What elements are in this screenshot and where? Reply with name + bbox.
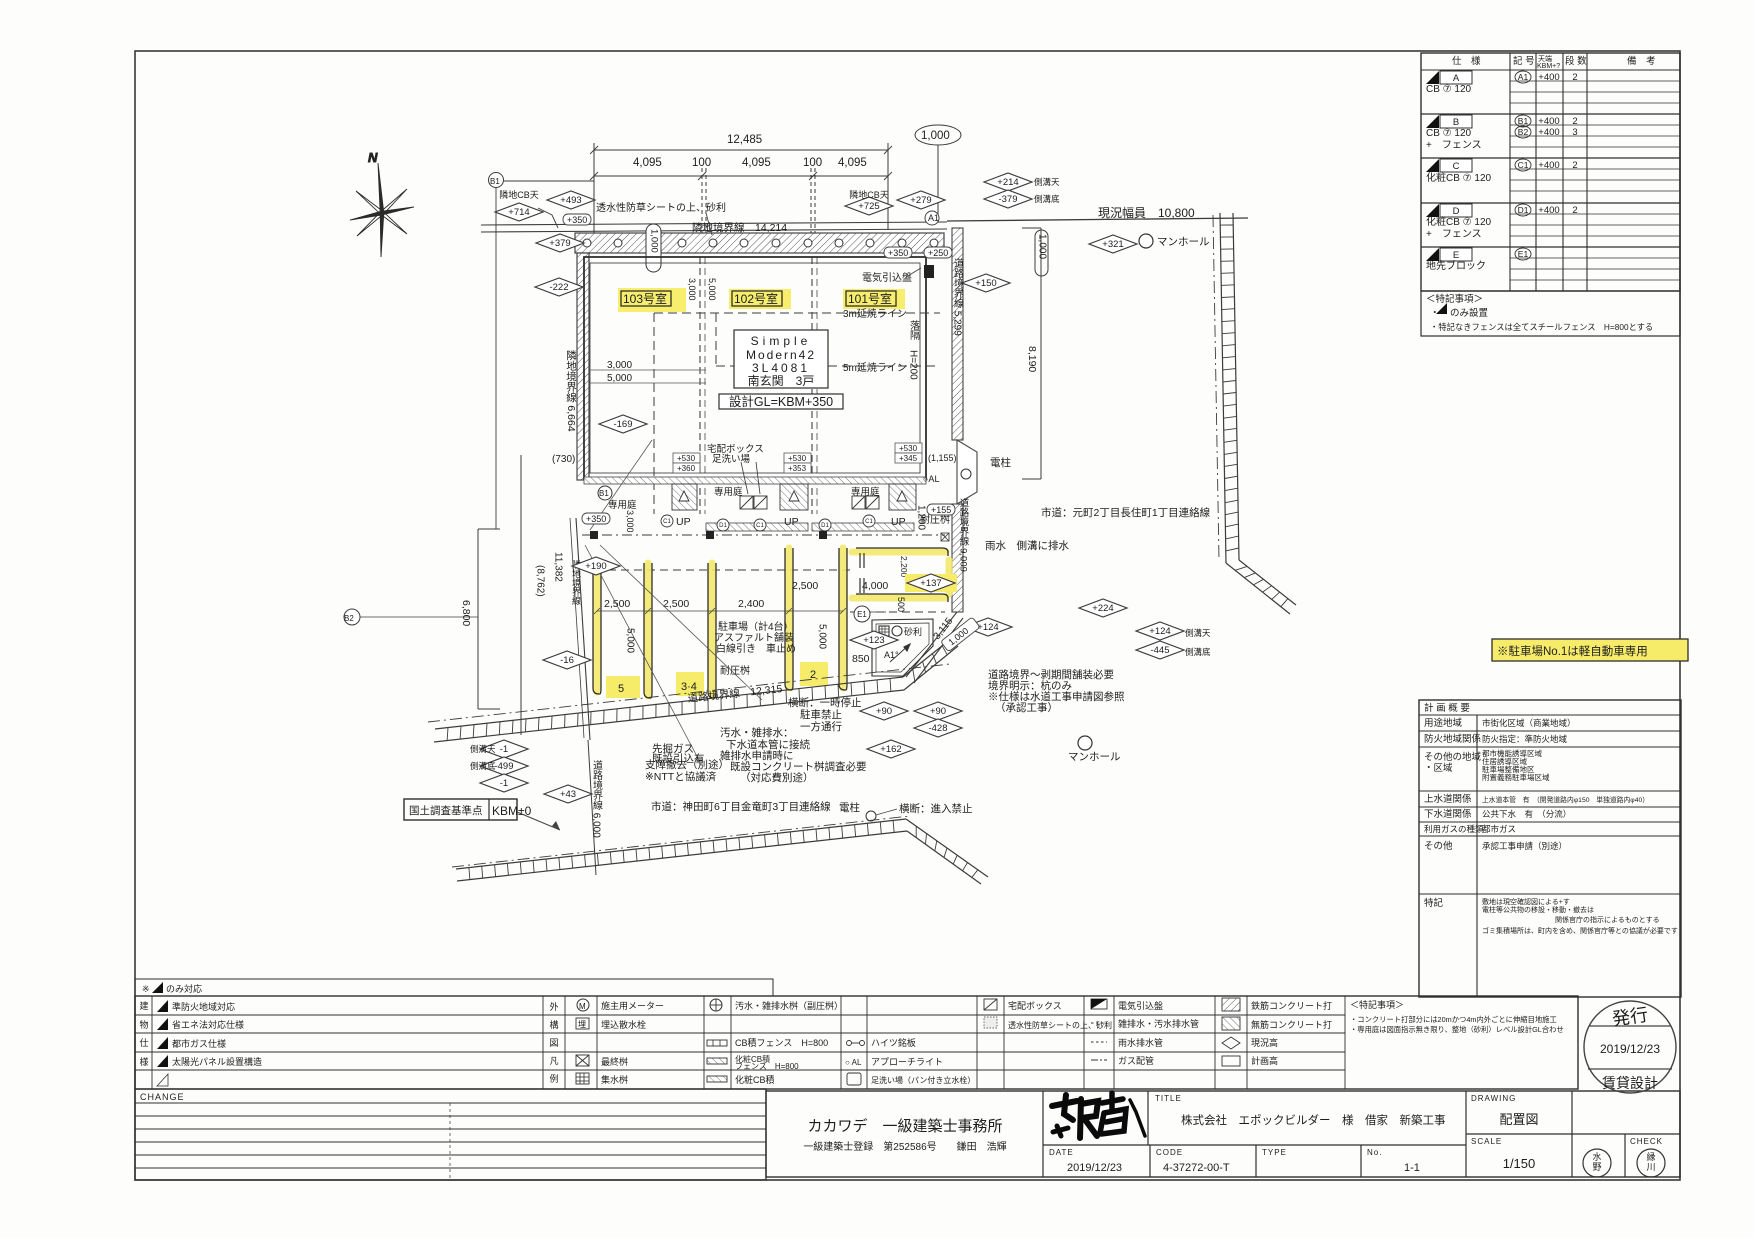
svg-text:3,000: 3,000 [687,278,697,301]
svg-text:下水道関係: 下水道関係 [1424,808,1472,820]
svg-text:落隔 H=200: 落隔 H=200 [908,320,920,380]
svg-text:電気引込盤: 電気引込盤 [862,271,912,284]
svg-text:宅配ボックス: 宅配ボックス [1008,1000,1062,1011]
svg-text:-445: -445 [1150,645,1169,656]
svg-text:仕 様: 仕 様 [1452,55,1481,67]
svg-text:※NTTと協議済: ※NTTと協議済 [645,770,717,783]
svg-text:透水性防草シートの上、砂利: 透水性防草シートの上、砂利 [596,201,726,214]
svg-text:-222: -222 [549,282,568,293]
svg-text:2: 2 [1572,205,1577,216]
svg-text:太陽光パネル設置構造: 太陽光パネル設置構造 [172,1056,262,1067]
svg-text:構: 構 [549,1019,558,1030]
svg-text:850: 850 [852,653,870,665]
svg-text:専用庭: 専用庭 [714,486,743,498]
svg-text:側溝底: 側溝底 [470,761,496,771]
svg-text:E: E [1453,250,1459,261]
svg-text:+214: +214 [997,177,1018,188]
svg-text:4,095: 4,095 [633,157,662,169]
svg-text:5,000: 5,000 [817,624,828,649]
svg-text:雑排水・汚水排水管: 雑排水・汚水排水管 [1118,1018,1199,1029]
svg-text:敷地は現空確認図による+す: 敷地は現空確認図による+す [1482,897,1570,906]
svg-text:C: C [1453,161,1460,172]
svg-text:施主用メーター: 施主用メーター [601,1000,664,1011]
svg-text:5,000: 5,000 [707,278,717,301]
svg-text:+ フェンス: + フェンス [1426,140,1482,151]
svg-text:アプローチライト: アプローチライト [871,1057,943,1067]
svg-text:TYPE: TYPE [1262,1148,1287,1157]
svg-text:株式会社 エポックビルダー 様 借家 新築工事: 株式会社 エポックビルダー 様 借家 新築工事 [1181,1113,1446,1127]
svg-text:ガス配管: ガス配管 [1118,1055,1154,1066]
svg-text:+530: +530 [677,454,696,463]
svg-text:+224: +224 [1092,603,1113,614]
svg-text:-1: -1 [500,778,508,789]
svg-text:備 考: 備 考 [1627,55,1656,67]
svg-text:100: 100 [803,157,822,169]
svg-text:側溝底: 側溝底 [1185,647,1211,657]
svg-text:様: 様 [139,1056,148,1067]
svg-text:+123: +123 [863,635,884,646]
svg-text:アスファルト舗装: アスファルト舗装 [714,631,794,644]
svg-text:B1: B1 [1518,116,1529,126]
svg-text:+530: +530 [788,454,807,463]
svg-text:-169: -169 [613,419,632,430]
svg-text:1/150: 1/150 [1503,1156,1536,1171]
svg-text:5,000: 5,000 [607,373,632,384]
svg-text:側溝天: 側溝天 [1034,177,1060,187]
svg-text:鉄筋コンクリート打: 鉄筋コンクリート打 [1251,1000,1332,1011]
svg-text:防火指定：準防火地域: 防火指定：準防火地域 [1482,734,1568,744]
svg-text:+250: +250 [928,248,948,258]
svg-text:+353: +353 [788,464,807,473]
svg-text:計画高: 計画高 [1251,1055,1278,1066]
svg-text:1-1: 1-1 [1404,1162,1420,1174]
svg-text:E1: E1 [857,610,867,619]
svg-text:側溝天: 側溝天 [470,744,496,754]
svg-text:+43: +43 [560,789,576,800]
svg-text:・: ・ [1430,308,1440,319]
svg-text:側溝天: 側溝天 [1185,628,1211,638]
svg-text:-16: -16 [560,655,574,666]
svg-text:・区域: ・区域 [1424,762,1453,774]
svg-text:-499: -499 [494,761,513,772]
svg-text:物: 物 [139,1019,148,1030]
svg-text:凡: 凡 [549,1056,558,1066]
svg-text:CB ⑦ 120: CB ⑦ 120 [1426,84,1472,95]
svg-text:用途地域: 用途地域 [1424,717,1463,729]
svg-text:UP: UP [891,516,906,528]
svg-text:-428: -428 [928,723,947,734]
svg-text:電柱: 電柱 [839,801,860,814]
svg-text:N: N [368,150,378,165]
svg-text:天端: 天端 [1538,54,1552,63]
svg-text:6,800: 6,800 [460,600,472,626]
svg-text:2,500: 2,500 [663,598,689,610]
svg-text:+321: +321 [1102,239,1123,250]
svg-text:(730): (730) [552,454,575,465]
svg-text:隣地境界線 14,214: 隣地境界線 14,214 [692,221,787,234]
svg-text:+162: +162 [880,744,901,755]
svg-text:一方通行: 一方通行 [800,720,842,733]
svg-text:D1: D1 [719,523,727,529]
svg-text:D1: D1 [1518,205,1529,215]
svg-text:B1: B1 [490,177,500,186]
svg-text:DRAWING: DRAWING [1471,1094,1516,1103]
svg-text:+379: +379 [549,238,570,249]
svg-text:公共下水 有 （分流）: 公共下水 有 （分流） [1482,809,1571,819]
svg-text:CB積フェンス H=800: CB積フェンス H=800 [735,1037,828,1048]
svg-text:最終桝: 最終桝 [601,1056,628,1067]
svg-text:+725: +725 [858,201,879,212]
svg-text:A1: A1 [1518,72,1529,82]
svg-text:2: 2 [1572,116,1577,127]
svg-text:+ フェンス: + フェンス [1426,229,1482,240]
svg-text:+714: +714 [508,207,529,218]
svg-text:計 画 概 要: 計 画 概 要 [1424,702,1470,714]
svg-text:地先ブロック: 地先ブロック [1426,259,1486,272]
svg-text:防火地域関係: 防火地域関係 [1424,733,1482,745]
svg-text:準防火地域対応: 準防火地域対応 [172,1001,235,1012]
svg-text:横断：進入禁止: 横断：進入禁止 [899,802,973,815]
svg-text:+124: +124 [1149,626,1170,637]
svg-text:3·4: 3·4 [681,681,697,693]
svg-text:2,500: 2,500 [604,598,630,610]
svg-text:＜特記事項＞: ＜特記事項＞ [1350,999,1404,1010]
svg-text:記 号: 記 号 [1513,55,1535,67]
svg-text:C1: C1 [756,523,764,529]
svg-text:カカワデ 一級建築士事務所: カカワデ 一級建築士事務所 [807,1117,1002,1135]
svg-text:集水桝: 集水桝 [601,1074,628,1085]
svg-text:市道：神田町6丁目金竜町3丁目連絡線: 市道：神田町6丁目金竜町3丁目連絡線 [651,800,831,813]
svg-text:M: M [579,1002,586,1011]
svg-text:103号室: 103号室 [623,291,667,306]
svg-text:+360: +360 [677,464,696,473]
svg-text:設計GL=KBM+350: 設計GL=KBM+350 [729,394,833,409]
svg-text:隣地境界線 6,664: 隣地境界線 6,664 [565,349,577,432]
svg-text:+155: +155 [931,505,951,515]
svg-text:Simple: Simple [751,334,812,348]
svg-text:+124: +124 [977,622,998,633]
svg-text:隣地CB天: 隣地CB天 [849,189,889,200]
svg-text:マンホール: マンホール [1157,236,1210,248]
svg-text:3: 3 [1572,127,1577,138]
svg-text:配置図: 配置図 [1499,1112,1538,1127]
svg-text:道路境界線 5,299: 道路境界線 5,299 [952,257,964,336]
svg-text:2019/12/23: 2019/12/23 [1067,1162,1122,1174]
svg-text:-379: -379 [998,194,1017,205]
svg-text:3L4081: 3L4081 [752,361,810,375]
svg-text:11,382: 11,382 [553,552,564,582]
svg-text:+400: +400 [1538,116,1559,127]
svg-text:SCALE: SCALE [1471,1137,1502,1146]
svg-text:B2: B2 [1518,127,1529,137]
svg-text:B: B [1453,117,1459,128]
svg-text:5: 5 [618,683,624,695]
svg-text:南玄関 3戸: 南玄関 3戸 [748,373,815,388]
svg-text:+400: +400 [1538,127,1559,138]
svg-text:+279: +279 [910,195,931,206]
svg-text:-1: -1 [500,744,508,755]
svg-text:専用庭: 専用庭 [851,486,880,498]
svg-text:透水性防草シートの上、砂利: 透水性防草シートの上、砂利 [1008,1020,1112,1030]
svg-text:マンホール: マンホール [1068,751,1121,763]
svg-text:関係官庁の指示によるものとする: 関係官庁の指示によるものとする [1555,915,1660,924]
svg-text:・専用庭は図面指示無き限り、整地（砂利）レベル設計GL合わせ: ・専用庭は図面指示無き限り、整地（砂利）レベル設計GL合わせ [1350,1025,1564,1034]
svg-text:(1,155): (1,155) [928,453,957,463]
svg-text:+400: +400 [1538,205,1559,216]
svg-text:4-37272-00-T: 4-37272-00-T [1163,1162,1230,1174]
svg-text:3,000: 3,000 [625,510,635,533]
svg-text:○ AL: ○ AL [845,1058,862,1067]
svg-text:電気引込盤: 電気引込盤 [1118,1000,1163,1011]
svg-text:CHECK: CHECK [1630,1137,1663,1146]
svg-text:+530: +530 [899,444,918,453]
svg-text:駐車場（計4台）: 駐車場（計4台） [718,620,794,633]
svg-text:1,000: 1,000 [649,229,660,253]
svg-text:+350: +350 [567,215,587,225]
svg-text:隣地CB天: 隣地CB天 [499,189,539,200]
svg-text:※駐車場No.1は軽自動車専用: ※駐車場No.1は軽自動車専用 [1497,644,1648,658]
svg-text:C1: C1 [663,519,671,525]
svg-text:+493: +493 [560,195,581,206]
svg-text:1,000: 1,000 [921,130,950,142]
svg-text:+90: +90 [930,706,946,717]
svg-text:5m延焼ライン: 5m延焼ライン [843,362,907,374]
svg-text:市道：元町2丁目長住町1丁目連絡線: 市道：元町2丁目長住町1丁目連絡線 [1041,506,1211,519]
svg-text:砂利: 砂利 [904,626,922,637]
svg-text:上水道関係: 上水道関係 [1424,793,1472,805]
svg-text:特記: 特記 [1424,897,1444,909]
svg-text:駐車禁止: 駐車禁止 [800,708,842,721]
svg-text:UP: UP [784,516,799,528]
svg-text:省エネ法対応仕様: 省エネ法対応仕様 [172,1019,244,1030]
svg-text:2,500: 2,500 [792,580,818,592]
svg-text:3m延焼ライン: 3m延焼ライン [843,308,907,320]
svg-text:水: 水 [1592,1151,1601,1162]
svg-text:UP: UP [676,516,691,528]
svg-text:D: D [1453,206,1460,217]
svg-text:道路境界線 9,009: 道路境界線 9,009 [958,497,970,572]
svg-text:・特記なきフェンスは全てスチールフェンス H=800とする: ・特記なきフェンスは全てスチールフェンス H=800とする [1430,322,1653,332]
svg-text:＜特記事項＞: ＜特記事項＞ [1426,293,1483,305]
svg-text:TITLE: TITLE [1155,1094,1182,1103]
svg-text:8,190: 8,190 [1026,346,1038,372]
svg-text:雨水排水管: 雨水排水管 [1118,1037,1163,1048]
svg-text:その他の地域: その他の地域 [1424,751,1482,763]
svg-text:A: A [1453,73,1460,84]
svg-text:500: 500 [896,597,906,612]
svg-text:附置義務駐車場区域: 附置義務駐車場区域 [1482,772,1550,782]
svg-text:102号室: 102号室 [734,291,778,306]
svg-text:E1: E1 [1518,249,1529,259]
svg-text:側溝底: 側溝底 [1034,194,1060,204]
svg-text:賃貸設計: 賃貸設計 [1602,1075,1658,1091]
svg-text:100: 100 [692,157,711,169]
svg-text:利用ガスの種類: 利用ガスの種類 [1424,824,1484,834]
svg-text:都市ガス仕様: 都市ガス仕様 [172,1038,226,1049]
svg-text:C1: C1 [1518,160,1529,170]
svg-text:+350: +350 [586,514,606,524]
svg-text:承認工事申請（別途）: 承認工事申請（別途） [1482,841,1567,851]
svg-text:電柱: 電柱 [990,456,1011,469]
svg-text:DATE: DATE [1049,1148,1074,1157]
svg-text:CHANGE: CHANGE [140,1092,185,1102]
svg-text:A1°: A1° [884,650,899,660]
svg-text:Modern42: Modern42 [746,348,816,362]
svg-text:・コンクリート打部分には20mかつ4m内外ごとに伸縮目地施工: ・コンクリート打部分には20mかつ4m内外ごとに伸縮目地施工 [1350,1015,1557,1024]
svg-text:+90: +90 [876,706,892,717]
svg-text:+345: +345 [899,454,918,463]
svg-text:1,000: 1,000 [1037,234,1048,259]
svg-text:図: 図 [549,1038,558,1048]
svg-text:白線引き 車止め: 白線引き 車止め [716,642,796,655]
svg-text:耐圧桝: 耐圧桝 [720,664,750,677]
svg-text:野: 野 [1592,1162,1601,1172]
svg-text:3,000: 3,000 [607,360,632,371]
svg-text:現況幅員 10,800: 現況幅員 10,800 [1098,205,1195,220]
svg-text:B2: B2 [344,614,354,623]
svg-text:仕: 仕 [139,1037,148,1048]
svg-text:足洗い場（パン付き立水栓）: 足洗い場（パン付き立水栓） [871,1075,975,1085]
svg-text:（承認工事）: （承認工事） [995,701,1058,714]
svg-text:D1: D1 [821,523,829,529]
svg-text:市街化区域（商業地域）: 市街化区域（商業地域） [1482,718,1576,728]
svg-text:+350: +350 [888,248,908,258]
svg-text:+400: +400 [1538,72,1559,83]
svg-text:+150: +150 [975,278,996,289]
svg-text:埋: 埋 [578,1019,586,1029]
svg-text:化粧CB積: 化粧CB積 [735,1074,775,1085]
svg-text:電柱等公共物の移設・移動・撤去は: 電柱等公共物の移設・移動・撤去は [1482,905,1594,914]
svg-text:2: 2 [1572,160,1577,171]
svg-text:のみ対応: のみ対応 [166,983,202,994]
svg-text:（対応費別途）: （対応費別途） [740,771,814,784]
svg-text:※: ※ [142,984,150,994]
svg-text:No.: No. [1367,1148,1382,1157]
svg-text:12,485: 12,485 [727,134,762,146]
svg-text:フェンス H=800: フェンス H=800 [735,1062,799,1071]
svg-text:化粧CB ⑦ 120: 化粧CB ⑦ 120 [1426,171,1492,184]
svg-text:雨水 側溝に排水: 雨水 側溝に排水 [985,539,1069,552]
svg-text:B1: B1 [599,489,609,498]
svg-text:上水道本管 有 （開発道路内φ150 単独道路内φ40）: 上水道本管 有 （開発道路内φ150 単独道路内φ40） [1482,795,1649,804]
svg-text:建: 建 [139,1000,148,1011]
svg-text:2,400: 2,400 [738,598,764,610]
svg-text:4,000: 4,000 [862,580,888,592]
svg-text:川: 川 [1646,1162,1655,1172]
svg-text:無筋コンクリート打: 無筋コンクリート打 [1251,1019,1332,1030]
svg-text:+190: +190 [585,561,606,572]
svg-text:埋込散水栓: 埋込散水栓 [601,1019,646,1030]
svg-text:ゴミ集積場所は、町内を含め、関係官庁等との協議が必要です: ゴミ集積場所は、町内を含め、関係官庁等との協議が必要です [1482,926,1678,935]
svg-text:化粧CB ⑦ 120: 化粧CB ⑦ 120 [1426,215,1492,228]
svg-text:○AL: ○AL [923,474,939,484]
svg-text:のみ設置: のみ設置 [1450,307,1488,319]
svg-text:2019/12/23: 2019/12/23 [1600,1042,1660,1056]
svg-text:既設引込有: 既設引込有 [652,752,705,765]
svg-text:101号室: 101号室 [848,291,892,306]
svg-text:4,095: 4,095 [742,157,771,169]
svg-text:+137: +137 [920,578,941,589]
svg-text:道路境界線 6,000: 道路境界線 6,000 [591,759,603,838]
svg-text:CODE: CODE [1156,1148,1183,1157]
svg-text:足洗い場: 足洗い場 [712,453,751,465]
svg-text:外: 外 [549,1001,558,1012]
svg-text:現況高: 現況高 [1251,1037,1278,1048]
svg-text:段 数: 段 数 [1565,55,1587,67]
svg-text:C1: C1 [865,519,873,525]
svg-text:縁: 縁 [1646,1151,1655,1162]
svg-text:例: 例 [549,1073,558,1084]
svg-text:+400: +400 [1538,160,1559,171]
svg-text:その他: その他 [1424,840,1453,852]
svg-text:CB ⑦ 120: CB ⑦ 120 [1426,128,1472,139]
svg-text:(8,762): (8,762) [535,565,546,597]
svg-text:A1: A1 [928,213,939,223]
svg-text:汚水・雑排水桝（副圧桝）: 汚水・雑排水桝（副圧桝） [735,1000,843,1011]
svg-text:国土調査基準点: 国土調査基準点 [409,804,483,817]
svg-text:一級建築士登録 第252586号 鎌田 浩輝: 一級建築士登録 第252586号 鎌田 浩輝 [803,1140,1006,1153]
svg-text:都市ガス: 都市ガス [1482,824,1516,834]
svg-text:5,000: 5,000 [625,628,636,653]
svg-text:KBM+?: KBM+? [1537,63,1560,70]
svg-text:汚水・雑排水：: 汚水・雑排水： [720,726,794,739]
svg-text:ハイツ銘板: ハイツ銘板 [871,1037,916,1048]
svg-text:4,095: 4,095 [838,157,867,169]
svg-text:2: 2 [1572,72,1577,83]
